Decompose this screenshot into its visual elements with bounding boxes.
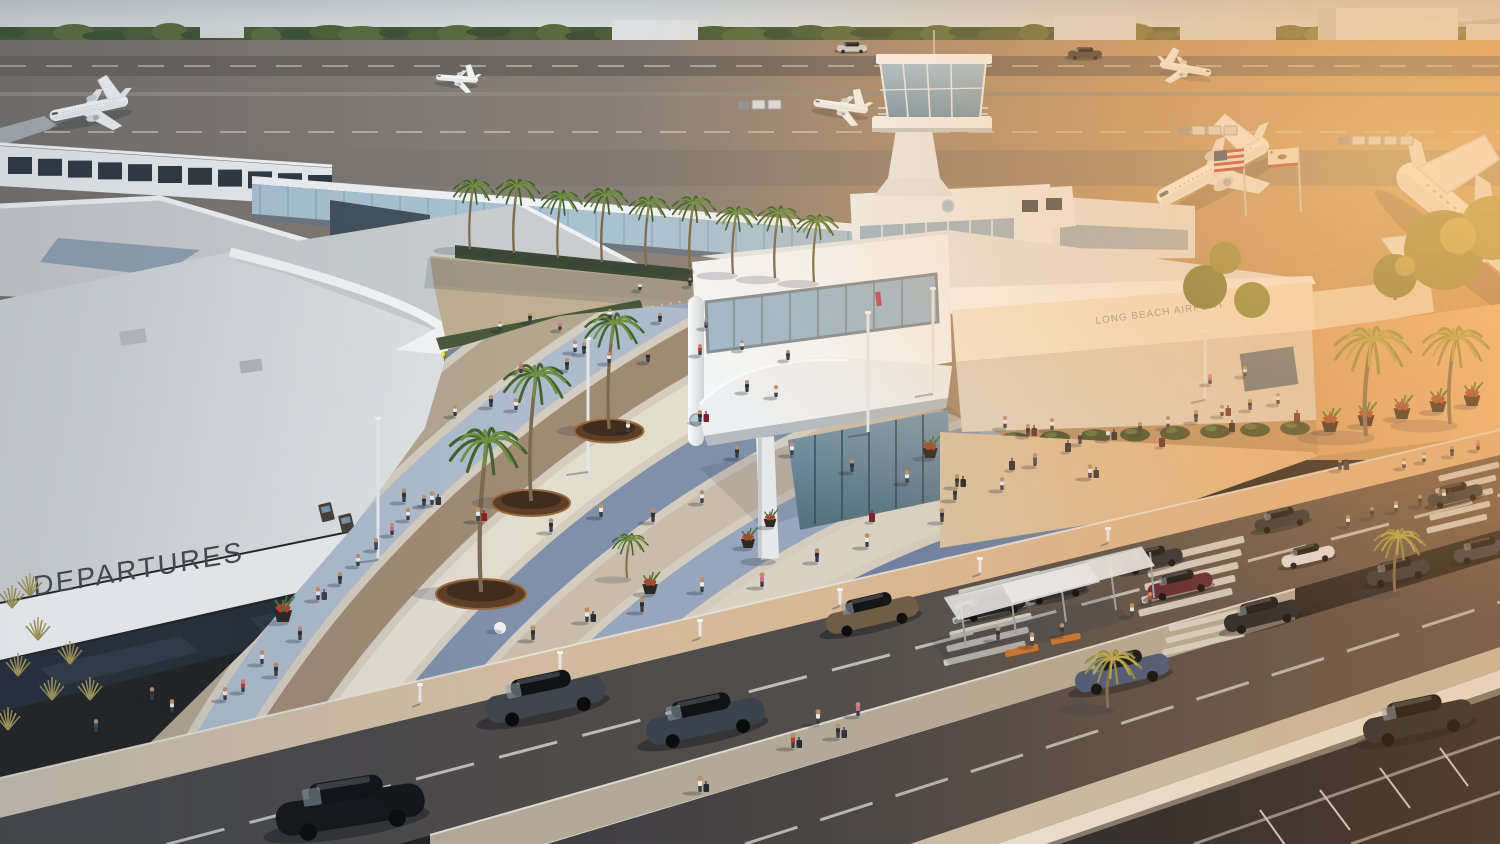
airport-rendering: DEPARTURES LONG BEACH AIRPORT [0,0,1500,844]
sun-glow [0,0,1500,844]
airport-scene: DEPARTURES LONG BEACH AIRPORT [0,0,1500,844]
